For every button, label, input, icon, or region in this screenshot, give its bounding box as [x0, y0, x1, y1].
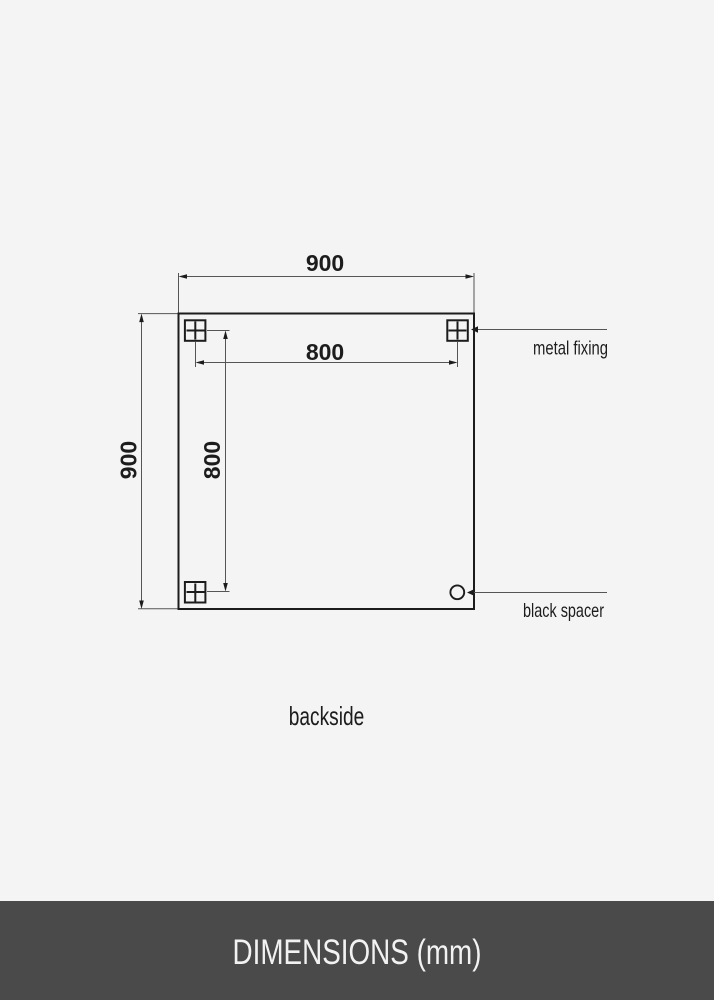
svg-text:900: 900	[306, 250, 344, 276]
svg-text:900: 900	[116, 441, 142, 479]
svg-text:backside: backside	[289, 701, 365, 731]
svg-text:metal fixing: metal fixing	[533, 338, 608, 360]
svg-text:800: 800	[306, 339, 344, 365]
svg-text:black spacer: black spacer	[523, 600, 604, 622]
svg-text:DIMENSIONS (mm): DIMENSIONS (mm)	[233, 933, 482, 972]
svg-text:800: 800	[199, 441, 225, 479]
